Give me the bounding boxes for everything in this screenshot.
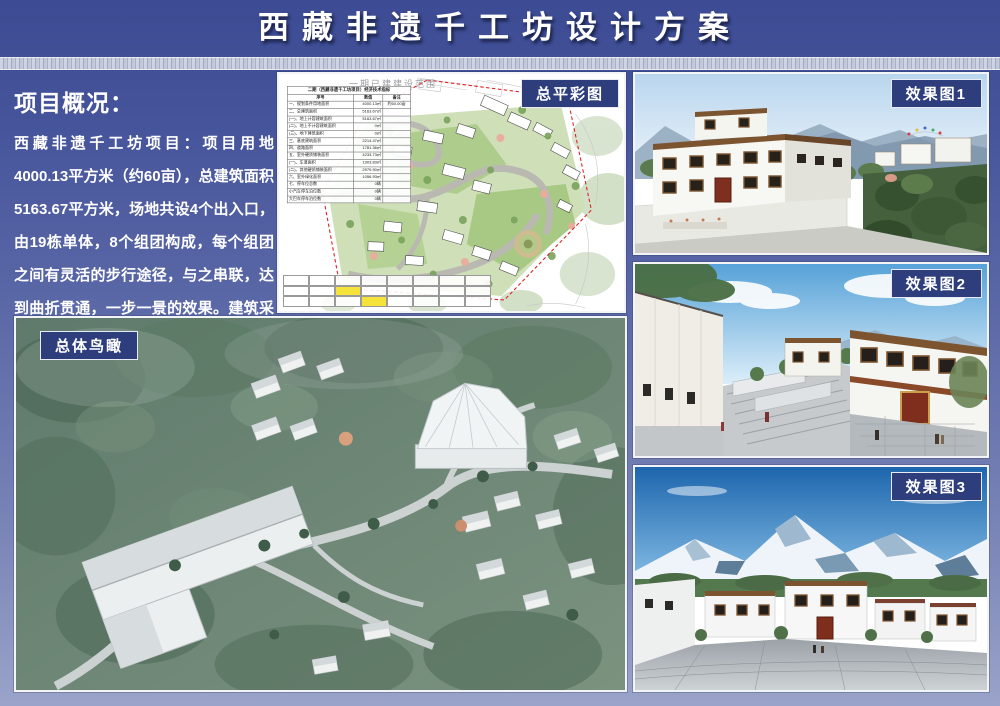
table-col-header: 数值 bbox=[354, 94, 383, 101]
overview-heading: 项目概况： bbox=[14, 84, 274, 118]
siteplan-label: 总平彩图 bbox=[521, 79, 619, 108]
ornament-border bbox=[0, 57, 1000, 70]
table-row: (三)、地下建筑面积 0㎡ bbox=[287, 130, 410, 137]
siteplan-economic-table-wrap: 二期（西藏非遗千工坊项目）经济技术指标 序号 数值 备注 一、规划条件用地面积 … bbox=[287, 86, 411, 203]
table-row: (一)、地上计容建筑面积 5163.67㎡ bbox=[287, 116, 410, 123]
middle-building bbox=[785, 338, 841, 376]
siteplan-mini-table bbox=[283, 275, 491, 307]
table-row: 大巴车停车泊位数 0辆 bbox=[287, 196, 410, 203]
rendering-3-label: 效果图3 bbox=[891, 472, 982, 501]
rendering-2-panel: 效果图2 bbox=[633, 262, 989, 458]
table-row: 四、道路面积 1781.36㎡ bbox=[287, 145, 410, 152]
aerial-view-image bbox=[16, 318, 625, 690]
aerial-view-drawing bbox=[16, 318, 625, 690]
rendering-1-label: 效果图1 bbox=[891, 79, 982, 108]
table-row: (一)、车道面积 1303.83㎡ bbox=[287, 159, 410, 166]
table-col-header: 序号 bbox=[287, 94, 353, 101]
poster: 西藏非遗千工坊设计方案 项目概况： 西藏非遗千工坊项目：项目用地4000.13平… bbox=[0, 0, 1000, 706]
siteplan-circular-plaza bbox=[514, 230, 542, 258]
highlight-cell bbox=[335, 286, 361, 297]
aerial-view-panel: 总体鸟瞰 bbox=[14, 316, 627, 692]
table-row: 六、室外绿化面积 1056.93㎡ bbox=[287, 174, 410, 181]
rendering-2-label: 效果图2 bbox=[891, 269, 982, 298]
planter bbox=[663, 222, 727, 229]
table-row: 七、停车位总数 0辆 bbox=[287, 181, 410, 188]
poster-title: 西藏非遗千工坊设计方案 bbox=[0, 0, 1000, 56]
table-row: (二)、其他硬质铺装面积 2979.90㎡ bbox=[287, 167, 410, 174]
table-col-header: 备注 bbox=[383, 94, 411, 101]
table-title: 二期（西藏非遗千工坊项目）经济技术指标 bbox=[287, 86, 410, 94]
table-row: 二、总建筑面积 5163.67㎡ bbox=[287, 109, 410, 116]
table-row: 小汽车停车泊位数 0辆 bbox=[287, 189, 410, 196]
rendering-3-panel: 效果图3 bbox=[633, 465, 989, 692]
highlight-cell bbox=[361, 296, 387, 307]
title-bar: 西藏非遗千工坊设计方案 bbox=[0, 0, 1000, 57]
table-row: 三、基底建筑面积 2214.47㎡ bbox=[287, 138, 410, 145]
table-row: (二)、地上不计容建筑面积 0㎡ bbox=[287, 123, 410, 130]
siteplan-panel: 一期已建建设范围 二期（西藏非遗千工坊项目）经济技术指标 序号 数值 备注 一、… bbox=[277, 72, 626, 313]
aerial-view-label: 总体鸟瞰 bbox=[40, 331, 138, 360]
rendering-1-panel: 效果图1 bbox=[633, 72, 989, 255]
table-row: 五、室外硬质铺装面积 4233.73㎡ bbox=[287, 152, 410, 159]
table-row: 一、规划条件用地面积 4000.13㎡ 约60.00亩 bbox=[287, 101, 410, 108]
siteplan-economic-table: 二期（西藏非遗千工坊项目）经济技术指标 序号 数值 备注 一、规划条件用地面积 … bbox=[287, 86, 411, 203]
left-building bbox=[635, 292, 723, 456]
